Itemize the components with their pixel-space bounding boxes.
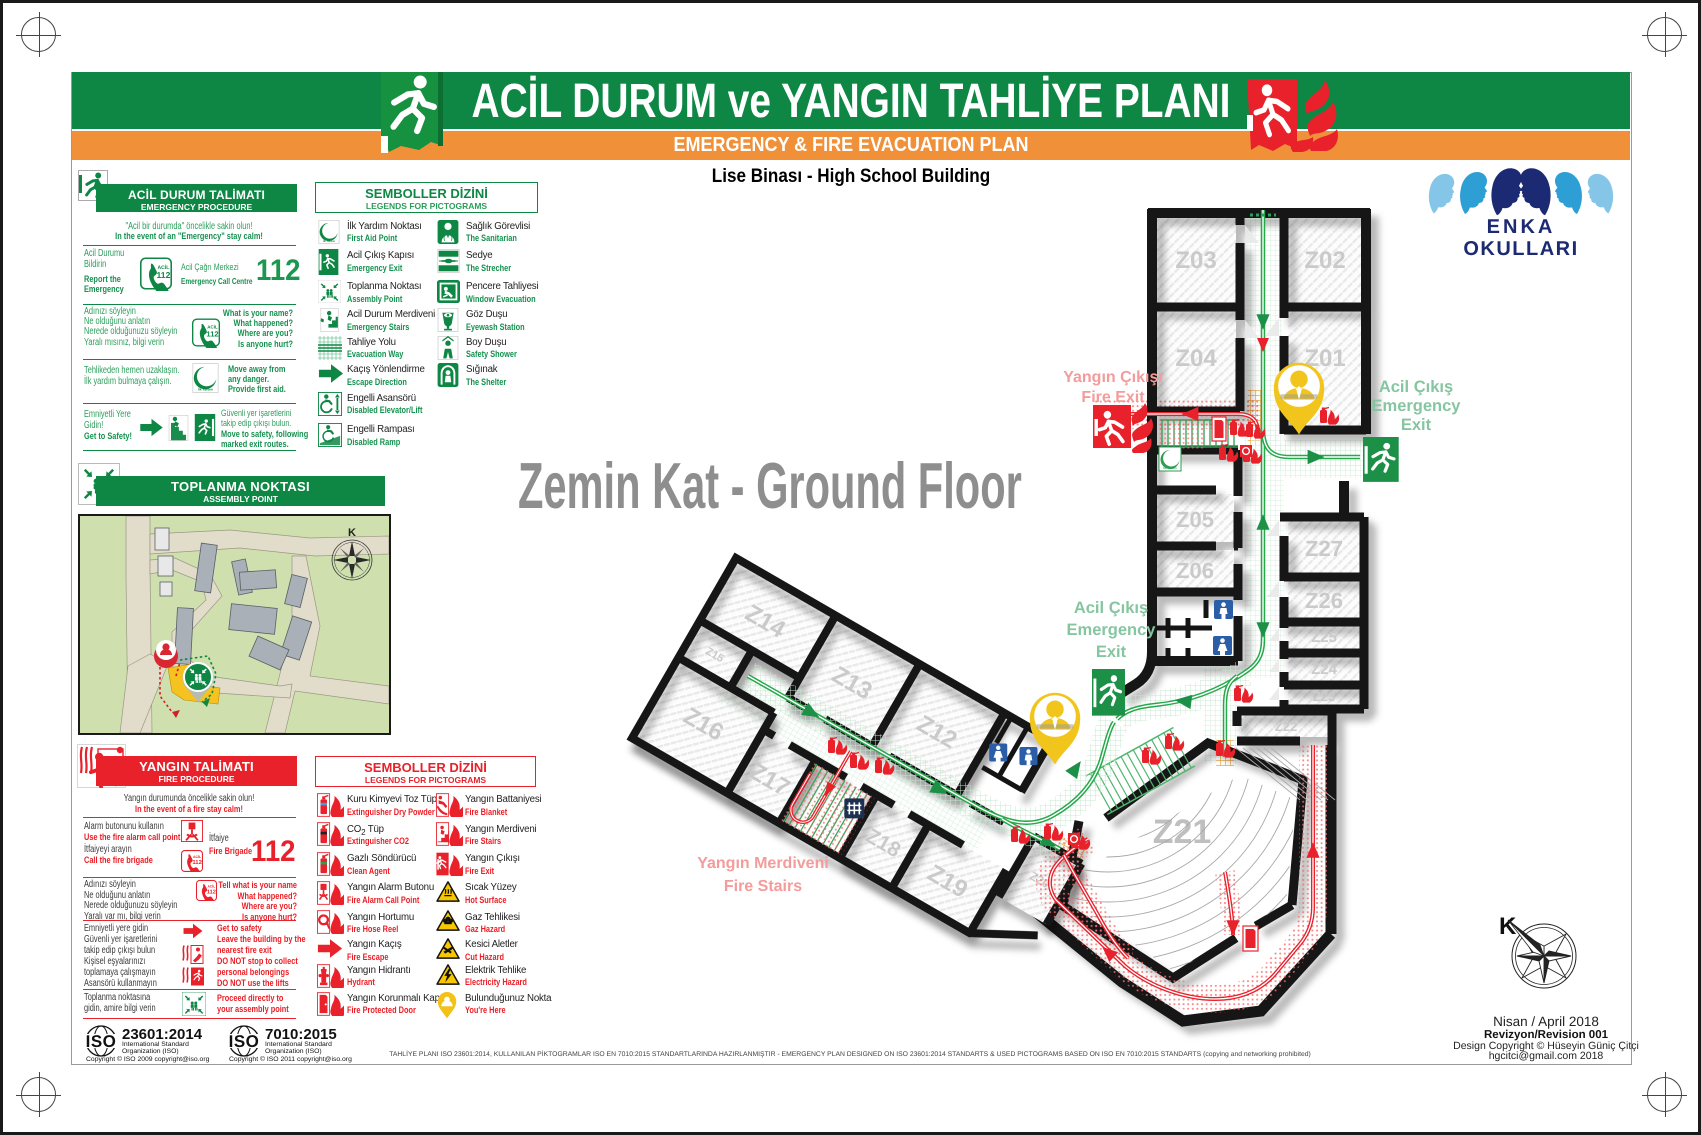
- svg-text:Acil Çıkış: Acil Çıkış: [1379, 378, 1453, 396]
- svg-text:Yangın Çıkışı: Yangın Çıkışı: [1063, 369, 1163, 386]
- svg-text:Z26: Z26: [1305, 588, 1343, 613]
- svg-text:Z06: Z06: [1176, 558, 1214, 583]
- svg-text:Z21: Z21: [1153, 813, 1212, 851]
- svg-text:Z04: Z04: [1175, 345, 1217, 372]
- svg-text:hgcitci@gmail.com 2018: hgcitci@gmail.com 2018: [1489, 1050, 1604, 1062]
- svg-text:Emergency: Emergency: [1372, 397, 1462, 415]
- svg-text:Z03: Z03: [1175, 247, 1216, 274]
- svg-text:Fire Exit: Fire Exit: [1081, 389, 1145, 406]
- svg-text:Yangın Merdiveni: Yangın Merdiveni: [697, 855, 829, 872]
- svg-text:Z02: Z02: [1304, 247, 1345, 274]
- svg-text:Nisan / April 2018: Nisan / April 2018: [1493, 1014, 1599, 1029]
- svg-text:Z05: Z05: [1176, 507, 1214, 532]
- svg-text:Z24: Z24: [1311, 661, 1338, 678]
- svg-text:Emergency: Emergency: [1067, 621, 1157, 639]
- svg-text:Z27: Z27: [1305, 536, 1343, 561]
- svg-text:Z25: Z25: [1311, 629, 1337, 646]
- svg-text:Fire Stairs: Fire Stairs: [724, 878, 802, 895]
- svg-text:Exit: Exit: [1096, 643, 1127, 661]
- svg-text:TAHLİYE PLANI ISO 23601:2014,: TAHLİYE PLANI ISO 23601:2014, KULLANILAN…: [389, 1050, 1311, 1058]
- svg-text:Z23: Z23: [1313, 689, 1335, 704]
- svg-text:Exit: Exit: [1401, 416, 1432, 434]
- svg-text:İlk Yardım: İlk Yardım: [1163, 466, 1177, 470]
- svg-text:Z22: Z22: [1275, 719, 1297, 734]
- svg-text:Acil Çıkış: Acil Çıkış: [1074, 599, 1148, 617]
